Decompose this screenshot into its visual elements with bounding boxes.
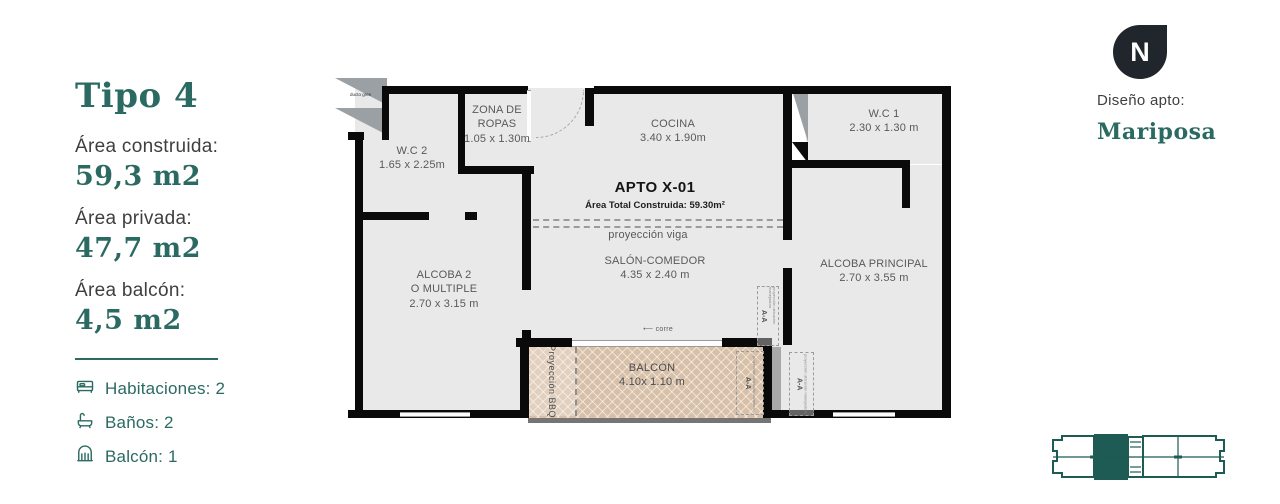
feature-balcony-label: Balcón: 1 (105, 447, 178, 467)
wall (942, 86, 951, 418)
area-balcony-label: Área balcón: (75, 280, 325, 302)
feature-balcony: Balcón: 1 (75, 444, 325, 469)
room-label-alcoba2: ALCOBA 2O MULTIPLE2.70 x 3.15 m (409, 268, 478, 311)
balcony-icon (75, 444, 95, 469)
floor-alcoba2 (355, 340, 522, 415)
feature-bedrooms: Habitaciones: 2 (75, 376, 325, 401)
room-label-salon: SALÓN-COMEDOR4.35 x 2.40 m (605, 254, 706, 283)
unit-type-title: Tipo 4 (75, 76, 325, 116)
feature-bedrooms-label: Habitaciones: 2 (105, 379, 225, 399)
beam-projection-label: proyección viga (608, 228, 687, 242)
design-name: Mariposa (1097, 119, 1216, 145)
wall (382, 86, 389, 140)
apto-subtitle: Área Total Construida: 59.30m² (585, 200, 725, 211)
building-minimap (1048, 430, 1228, 484)
aa-sublabel: proyección ubicación manejadora (804, 354, 808, 414)
wall (792, 160, 910, 168)
wall (520, 338, 529, 418)
aa-label: A-A (760, 310, 767, 322)
wall (594, 86, 951, 94)
room-label-wc2: W.C 21.65 x 2.25m (379, 144, 445, 173)
north-compass-icon: N (1113, 25, 1167, 79)
wall (783, 268, 792, 345)
aa-sublabel: proyección ubicación manejadora (768, 287, 776, 345)
duct-label: ducto gres (350, 92, 371, 97)
room-label-balcon: BALCÓN4.10x 1.10 m (619, 361, 685, 390)
area-balcony-value: 4,5 m2 (75, 305, 325, 336)
design-label: Diseño apto: (1097, 92, 1185, 109)
apto-title: APTO X-01 (615, 179, 696, 196)
apartment-plan-page: Tipo 4 Área construida: 59,3 m2 Área pri… (0, 0, 1280, 504)
wall (522, 170, 531, 290)
aa-projection-box: A-A proyección ubicación manejadora (789, 352, 814, 416)
feature-bathrooms: Baños: 2 (75, 410, 325, 435)
wall (355, 132, 363, 418)
left-arrow-icon: ⟵ (643, 326, 653, 333)
bbq-label: Proyección BBQ (547, 345, 557, 418)
window (400, 412, 470, 417)
wall (348, 132, 364, 140)
area-built-value: 59,3 m2 (75, 161, 325, 192)
wall (382, 86, 528, 94)
room-label-alcoba-principal: ALCOBA PRINCIPAL2.70 x 3.55 m (820, 257, 928, 286)
aa-projection-box: A-A proyección ubicación lavadero (736, 351, 764, 415)
bath-icon (75, 410, 95, 435)
divider (75, 358, 218, 360)
wall (783, 86, 792, 240)
window (833, 412, 895, 417)
beam-projection-line (533, 219, 783, 228)
info-panel: Tipo 4 Área construida: 59,3 m2 Área pri… (75, 76, 325, 469)
area-private-label: Área privada: (75, 208, 325, 230)
entrance-door-leaf (585, 88, 594, 126)
north-letter: N (1130, 37, 1150, 68)
feature-bathrooms-label: Baños: 2 (105, 413, 174, 433)
bed-icon (75, 376, 95, 401)
room-label-zona-ropas: ZONA DEROPAS1.05 x 1.30m (464, 103, 530, 146)
area-built-label: Área construida: (75, 136, 325, 158)
area-private-value: 47,7 m2 (75, 233, 325, 264)
aa-projection-box: A-A proyección ubicación manejadora (757, 286, 779, 346)
aa-label: A-A (796, 378, 803, 390)
room-label-cocina: COCINA3.40 x 1.90m (640, 117, 706, 146)
sliding-door-note: ⟵ corre (643, 325, 673, 333)
aa-label: A-A (744, 377, 751, 389)
wall (902, 168, 910, 208)
sliding-window (572, 340, 722, 347)
wall (763, 338, 772, 418)
room-label-wc1: W.C 12.30 x 1.30 m (849, 107, 918, 136)
balcony-edge-strip (528, 418, 771, 423)
wall (355, 212, 429, 220)
bbq-projection-zone: Proyección BBQ (529, 347, 577, 416)
floor-sliver (772, 347, 781, 418)
wall (465, 212, 477, 220)
aa-sublabel: proyección ubicación lavadero (752, 356, 756, 410)
